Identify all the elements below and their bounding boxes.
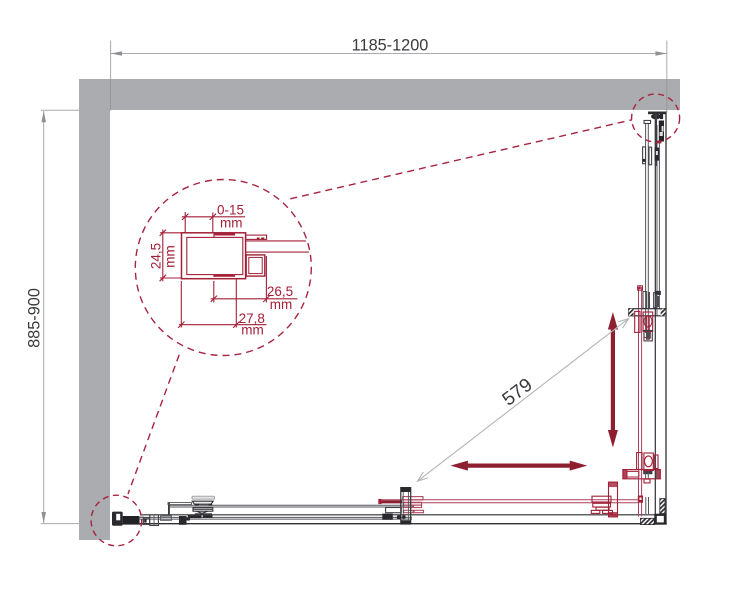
svg-text:1185-1200: 1185-1200 [352, 36, 429, 54]
svg-text:mm: mm [241, 323, 264, 338]
svg-text:mm: mm [163, 245, 178, 268]
svg-text:mm: mm [270, 297, 293, 312]
svg-text:24,5: 24,5 [149, 243, 164, 269]
svg-text:mm: mm [220, 215, 243, 230]
svg-text:885-900: 885-900 [26, 288, 44, 348]
